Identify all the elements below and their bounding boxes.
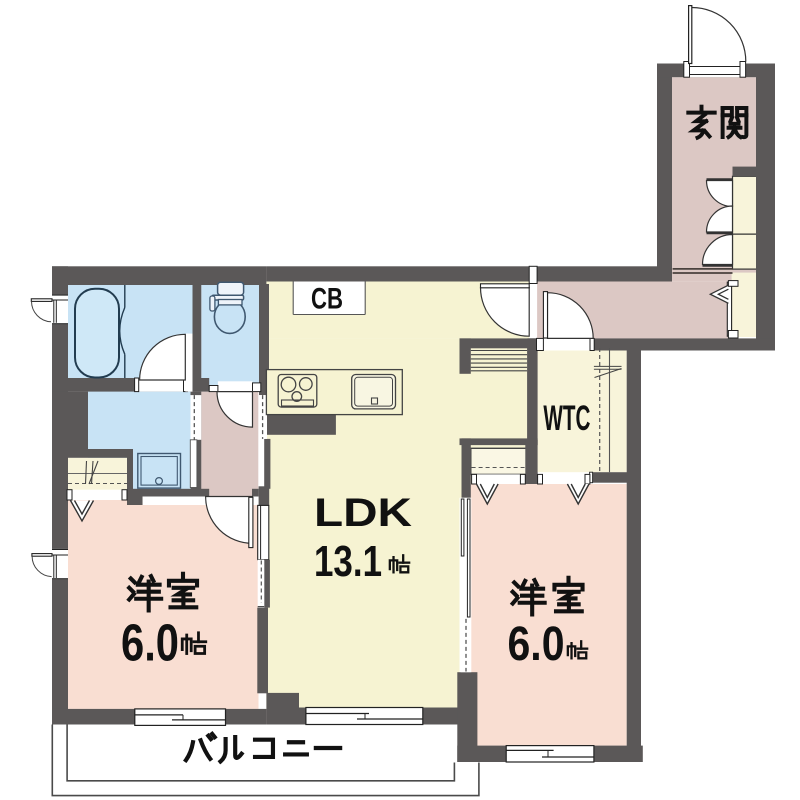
svg-text:6.0: 6.0 <box>508 618 565 671</box>
svg-text:CB: CB <box>311 283 343 316</box>
svg-text:WTC: WTC <box>543 399 590 438</box>
svg-text:6.0: 6.0 <box>121 615 179 673</box>
svg-text:13.1: 13.1 <box>314 537 382 586</box>
svg-text:LDK: LDK <box>314 491 412 535</box>
